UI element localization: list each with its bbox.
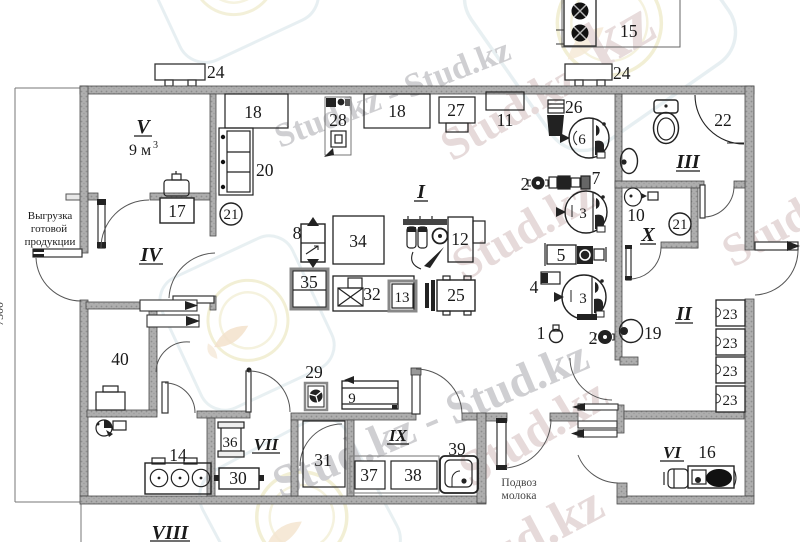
svg-text:10: 10 [627,205,645,225]
svg-text:14: 14 [169,445,187,465]
svg-text:VIII: VIII [152,522,190,542]
svg-text:23: 23 [723,364,738,380]
svg-text:молока: молока [502,490,537,502]
svg-text:11: 11 [497,110,514,130]
svg-text:21: 21 [224,207,239,223]
svg-text:29: 29 [305,362,323,382]
svg-text:IX: IX [388,426,408,445]
svg-text:26: 26 [565,97,583,117]
svg-text:35: 35 [300,272,318,292]
svg-text:7: 7 [592,168,601,188]
svg-text:34: 34 [349,231,367,251]
svg-text:27: 27 [447,100,465,120]
svg-text:38: 38 [404,465,422,485]
svg-text:2: 2 [589,328,598,348]
svg-text:II: II [675,303,693,325]
svg-text:4: 4 [530,277,539,297]
svg-text:36: 36 [223,435,239,451]
svg-text:IV: IV [139,244,163,266]
svg-text:Подвоз: Подвоз [501,477,537,489]
svg-text:23: 23 [723,336,738,352]
svg-text:продукции: продукции [25,236,76,248]
svg-text:8: 8 [293,223,302,243]
svg-text:2: 2 [521,174,530,194]
svg-text:3: 3 [579,291,587,307]
svg-text:24: 24 [613,63,631,83]
svg-text:31: 31 [314,450,332,470]
svg-text:Выгрузка: Выгрузка [28,210,73,222]
svg-text:30: 30 [229,468,247,488]
svg-text:16: 16 [698,442,716,462]
svg-text:20: 20 [256,160,274,180]
svg-text:23: 23 [723,307,738,323]
svg-text:III: III [675,151,701,173]
svg-text:VI: VI [663,443,682,462]
svg-text:13: 13 [395,290,410,306]
svg-text:15: 15 [620,21,638,41]
svg-text:1: 1 [537,323,546,343]
svg-text:37: 37 [360,465,378,485]
svg-text:X: X [640,224,655,246]
svg-text:23: 23 [723,393,738,409]
svg-text:12: 12 [451,229,469,249]
svg-text:V: V [136,116,151,138]
svg-text:40: 40 [111,349,129,369]
svg-text:7500: 7500 [0,302,6,326]
svg-text:25: 25 [447,285,465,305]
svg-text:VII: VII [254,435,280,454]
svg-text:6: 6 [578,132,586,148]
svg-text:24: 24 [207,62,225,82]
svg-text:18: 18 [388,101,406,121]
svg-text:19: 19 [644,323,662,343]
svg-text:17: 17 [168,201,186,221]
svg-text:3: 3 [579,206,587,222]
svg-text:готовой: готовой [31,223,67,235]
svg-text:21: 21 [673,217,688,233]
svg-text:28: 28 [329,110,347,130]
svg-text:9 м: 9 м [129,142,151,159]
svg-text:I: I [416,181,426,203]
svg-text:32: 32 [363,284,381,304]
svg-text:39: 39 [448,439,466,459]
svg-text:18: 18 [244,102,262,122]
svg-text:22: 22 [714,110,732,130]
svg-text:9: 9 [348,391,356,407]
svg-text:3: 3 [153,140,158,151]
svg-text:5: 5 [557,245,566,265]
